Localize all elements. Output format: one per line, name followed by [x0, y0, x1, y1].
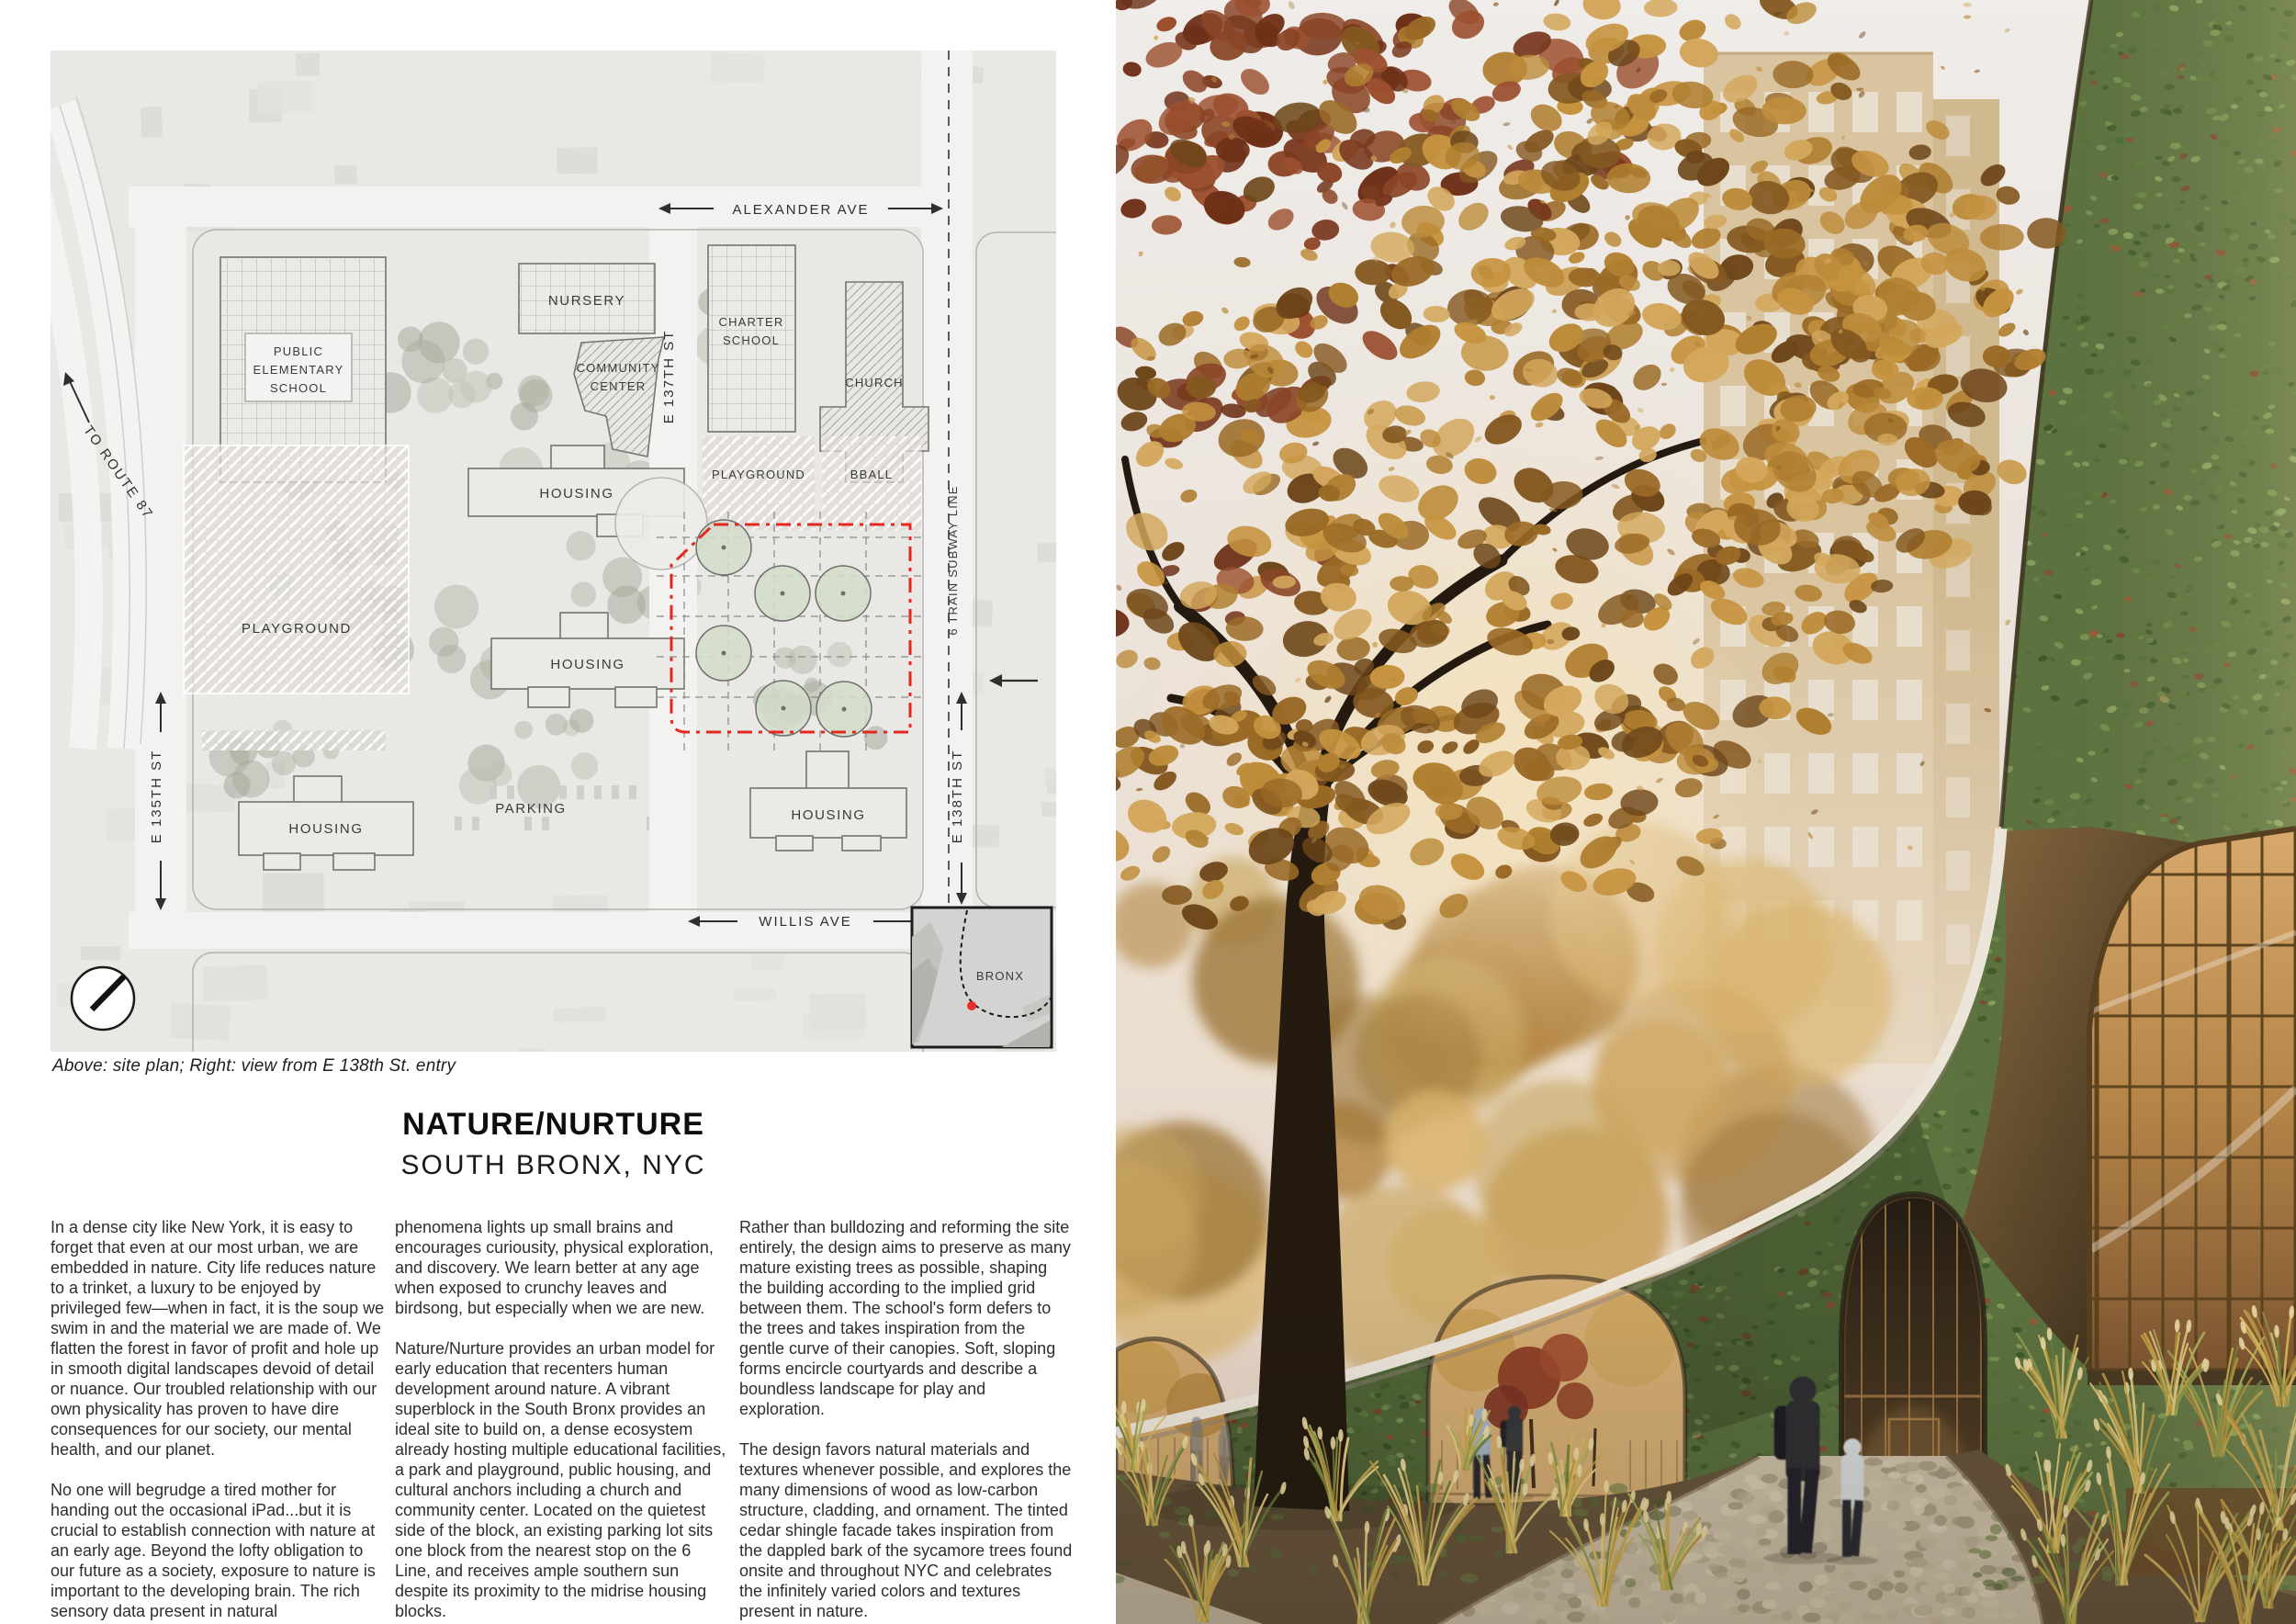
- column-1: In a dense city like New York, it is eas…: [51, 1217, 386, 1624]
- area-playground-top: PLAYGROUND BBALL: [703, 436, 921, 530]
- portfolio-page: PUBLIC ELEMENTARY SCHOOL PLAYGROUND NURS…: [0, 0, 2296, 1624]
- left-page: PUBLIC ELEMENTARY SCHOOL PLAYGROUND NURS…: [0, 0, 1116, 1624]
- caption: Above: site plan; Right: view from E 138…: [52, 1056, 456, 1077]
- label-public-school-3: SCHOOL: [270, 381, 327, 395]
- label-community-2: CENTER: [591, 379, 647, 393]
- label-charter-1: CHARTER: [718, 315, 783, 329]
- label-community-1: COMMUNITY: [577, 361, 660, 375]
- hatched-strip: [202, 730, 386, 750]
- vignette: [1116, 1286, 2296, 1624]
- label-subway: 6 TRAIN SUBWAY LINE: [946, 485, 960, 635]
- rendering-view: [1116, 0, 2296, 1624]
- site-location-dot: [967, 1001, 976, 1010]
- label-playground-left: PLAYGROUND: [242, 621, 352, 637]
- site-plan: PUBLIC ELEMENTARY SCHOOL PLAYGROUND NURS…: [51, 51, 1056, 1052]
- page-title: NATURE/NURTURE: [51, 1107, 1056, 1143]
- col2-paragraph-2: Nature/Nurture provides an urban model f…: [395, 1338, 730, 1621]
- page-subtitle: SOUTH BRONX, NYC: [51, 1150, 1056, 1181]
- label-alexander-ave: ALEXANDER AVE: [732, 202, 869, 218]
- label-housing-top: HOUSING: [539, 486, 613, 502]
- label-housing-bottom-right: HOUSING: [791, 807, 865, 823]
- rendering-illustration: [1116, 0, 2296, 1624]
- col1-paragraph-1: In a dense city like New York, it is eas…: [51, 1217, 386, 1460]
- column-2: phenomena lights up small brains and enc…: [395, 1217, 730, 1624]
- label-housing-bottom-left: HOUSING: [288, 821, 363, 837]
- building-nursery: NURSERY: [519, 264, 655, 333]
- label-e135: E 135TH ST: [149, 750, 164, 844]
- label-church: CHURCH: [845, 376, 904, 389]
- bronx-inset-map: BRONX: [912, 908, 1052, 1047]
- col3-paragraph-2: The design favors natural materials and …: [739, 1439, 1075, 1621]
- title-block: NATURE/NURTURE SOUTH BRONX, NYC: [51, 1107, 1056, 1181]
- north-indicator-icon: [72, 967, 134, 1030]
- col1-paragraph-2: No one will begrudge a tired mother for …: [51, 1480, 386, 1621]
- column-3: Rather than bulldozing and reforming the…: [739, 1217, 1075, 1624]
- label-public-school-1: PUBLIC: [274, 344, 323, 358]
- label-nursery: NURSERY: [548, 293, 625, 309]
- label-public-school-2: ELEMENTARY: [253, 363, 344, 377]
- area-playground-left: PLAYGROUND: [184, 445, 409, 694]
- pale-tree-circle: [615, 478, 707, 570]
- label-e137: E 137TH ST: [661, 330, 677, 424]
- label-willis-ave: WILLIS AVE: [759, 914, 851, 930]
- label-parking: PARKING: [495, 801, 567, 817]
- label-bronx: BRONX: [976, 969, 1024, 983]
- col3-paragraph-1: Rather than bulldozing and reforming the…: [739, 1217, 1075, 1419]
- site-plan-svg: PUBLIC ELEMENTARY SCHOOL PLAYGROUND NURS…: [51, 51, 1056, 1052]
- label-playground-top: PLAYGROUND: [712, 468, 805, 481]
- col2-paragraph-1: phenomena lights up small brains and enc…: [395, 1217, 730, 1318]
- label-bball: BBALL: [850, 468, 893, 481]
- building-charter-school: CHARTER SCHOOL: [708, 245, 795, 432]
- label-charter-2: SCHOOL: [723, 333, 780, 347]
- label-housing-mid: HOUSING: [550, 657, 625, 672]
- label-e138: E 138TH ST: [950, 750, 965, 844]
